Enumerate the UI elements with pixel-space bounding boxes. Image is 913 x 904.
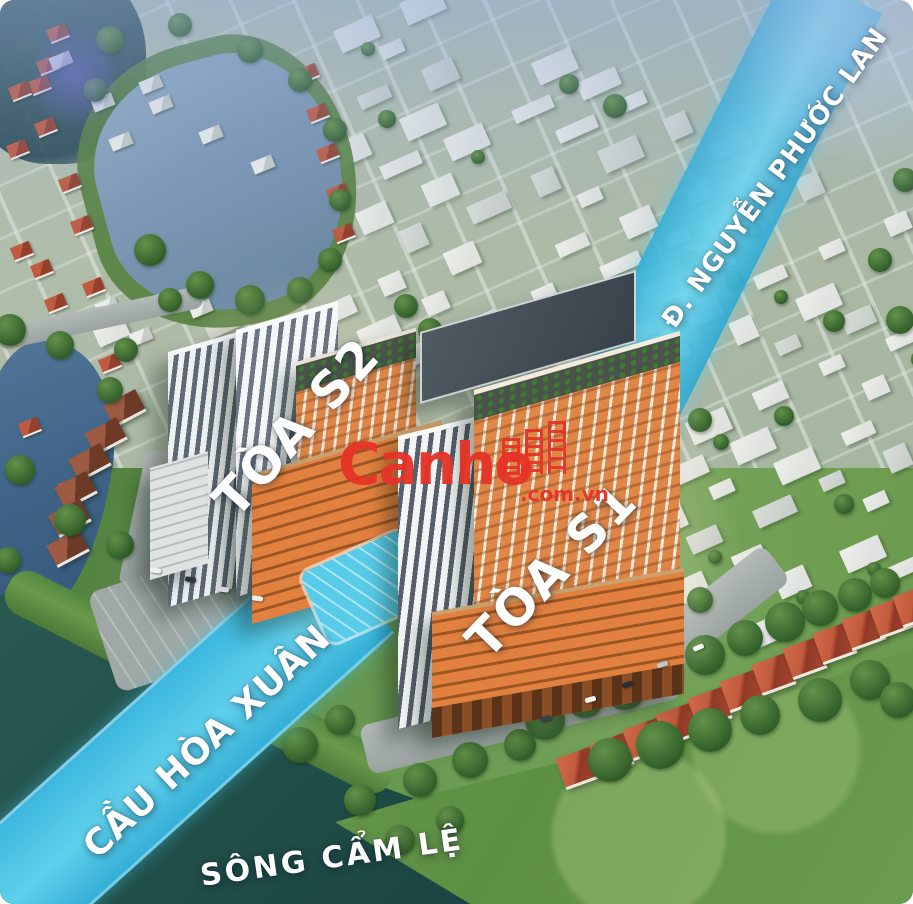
tower-s2-annex [150,451,208,580]
tree [318,248,342,272]
tree [886,306,913,334]
watermark: Canho .com.vn [338,420,598,510]
tree [46,331,74,359]
tree [106,531,134,559]
tree [378,110,396,128]
tree [288,68,312,92]
tree [452,742,488,778]
tree [134,234,166,266]
tree [603,94,627,118]
tree [688,708,732,752]
tree [329,189,351,211]
tree [504,729,536,761]
tree [893,168,913,192]
tree [765,602,805,642]
tree [798,678,842,722]
tree [880,682,913,718]
tree [344,784,376,816]
tree [403,763,437,797]
tree [168,13,192,37]
tree [802,590,838,626]
aerial-render-scene: Đ. NGUYỄN PHƯỚC LAN CẦU HÒA XUÂN TÒA S2 … [0,0,913,904]
city-buildings-icon [500,420,570,478]
tree [774,406,794,426]
tree [868,248,892,272]
tree [636,721,684,769]
tree [114,338,138,362]
tree [97,377,123,403]
tree [870,568,900,598]
tree [727,620,763,656]
tree [838,578,872,612]
tree [588,738,632,782]
tree [323,118,347,142]
tree [774,290,788,304]
tree [158,288,182,312]
tree [186,271,214,299]
tree [325,705,355,735]
tree [5,455,35,485]
tree [237,37,263,63]
tree [54,504,86,536]
lens-glare [38,6,112,144]
tree [740,695,780,735]
tree [282,727,318,763]
watermark-suffix: .com.vn [520,482,609,506]
